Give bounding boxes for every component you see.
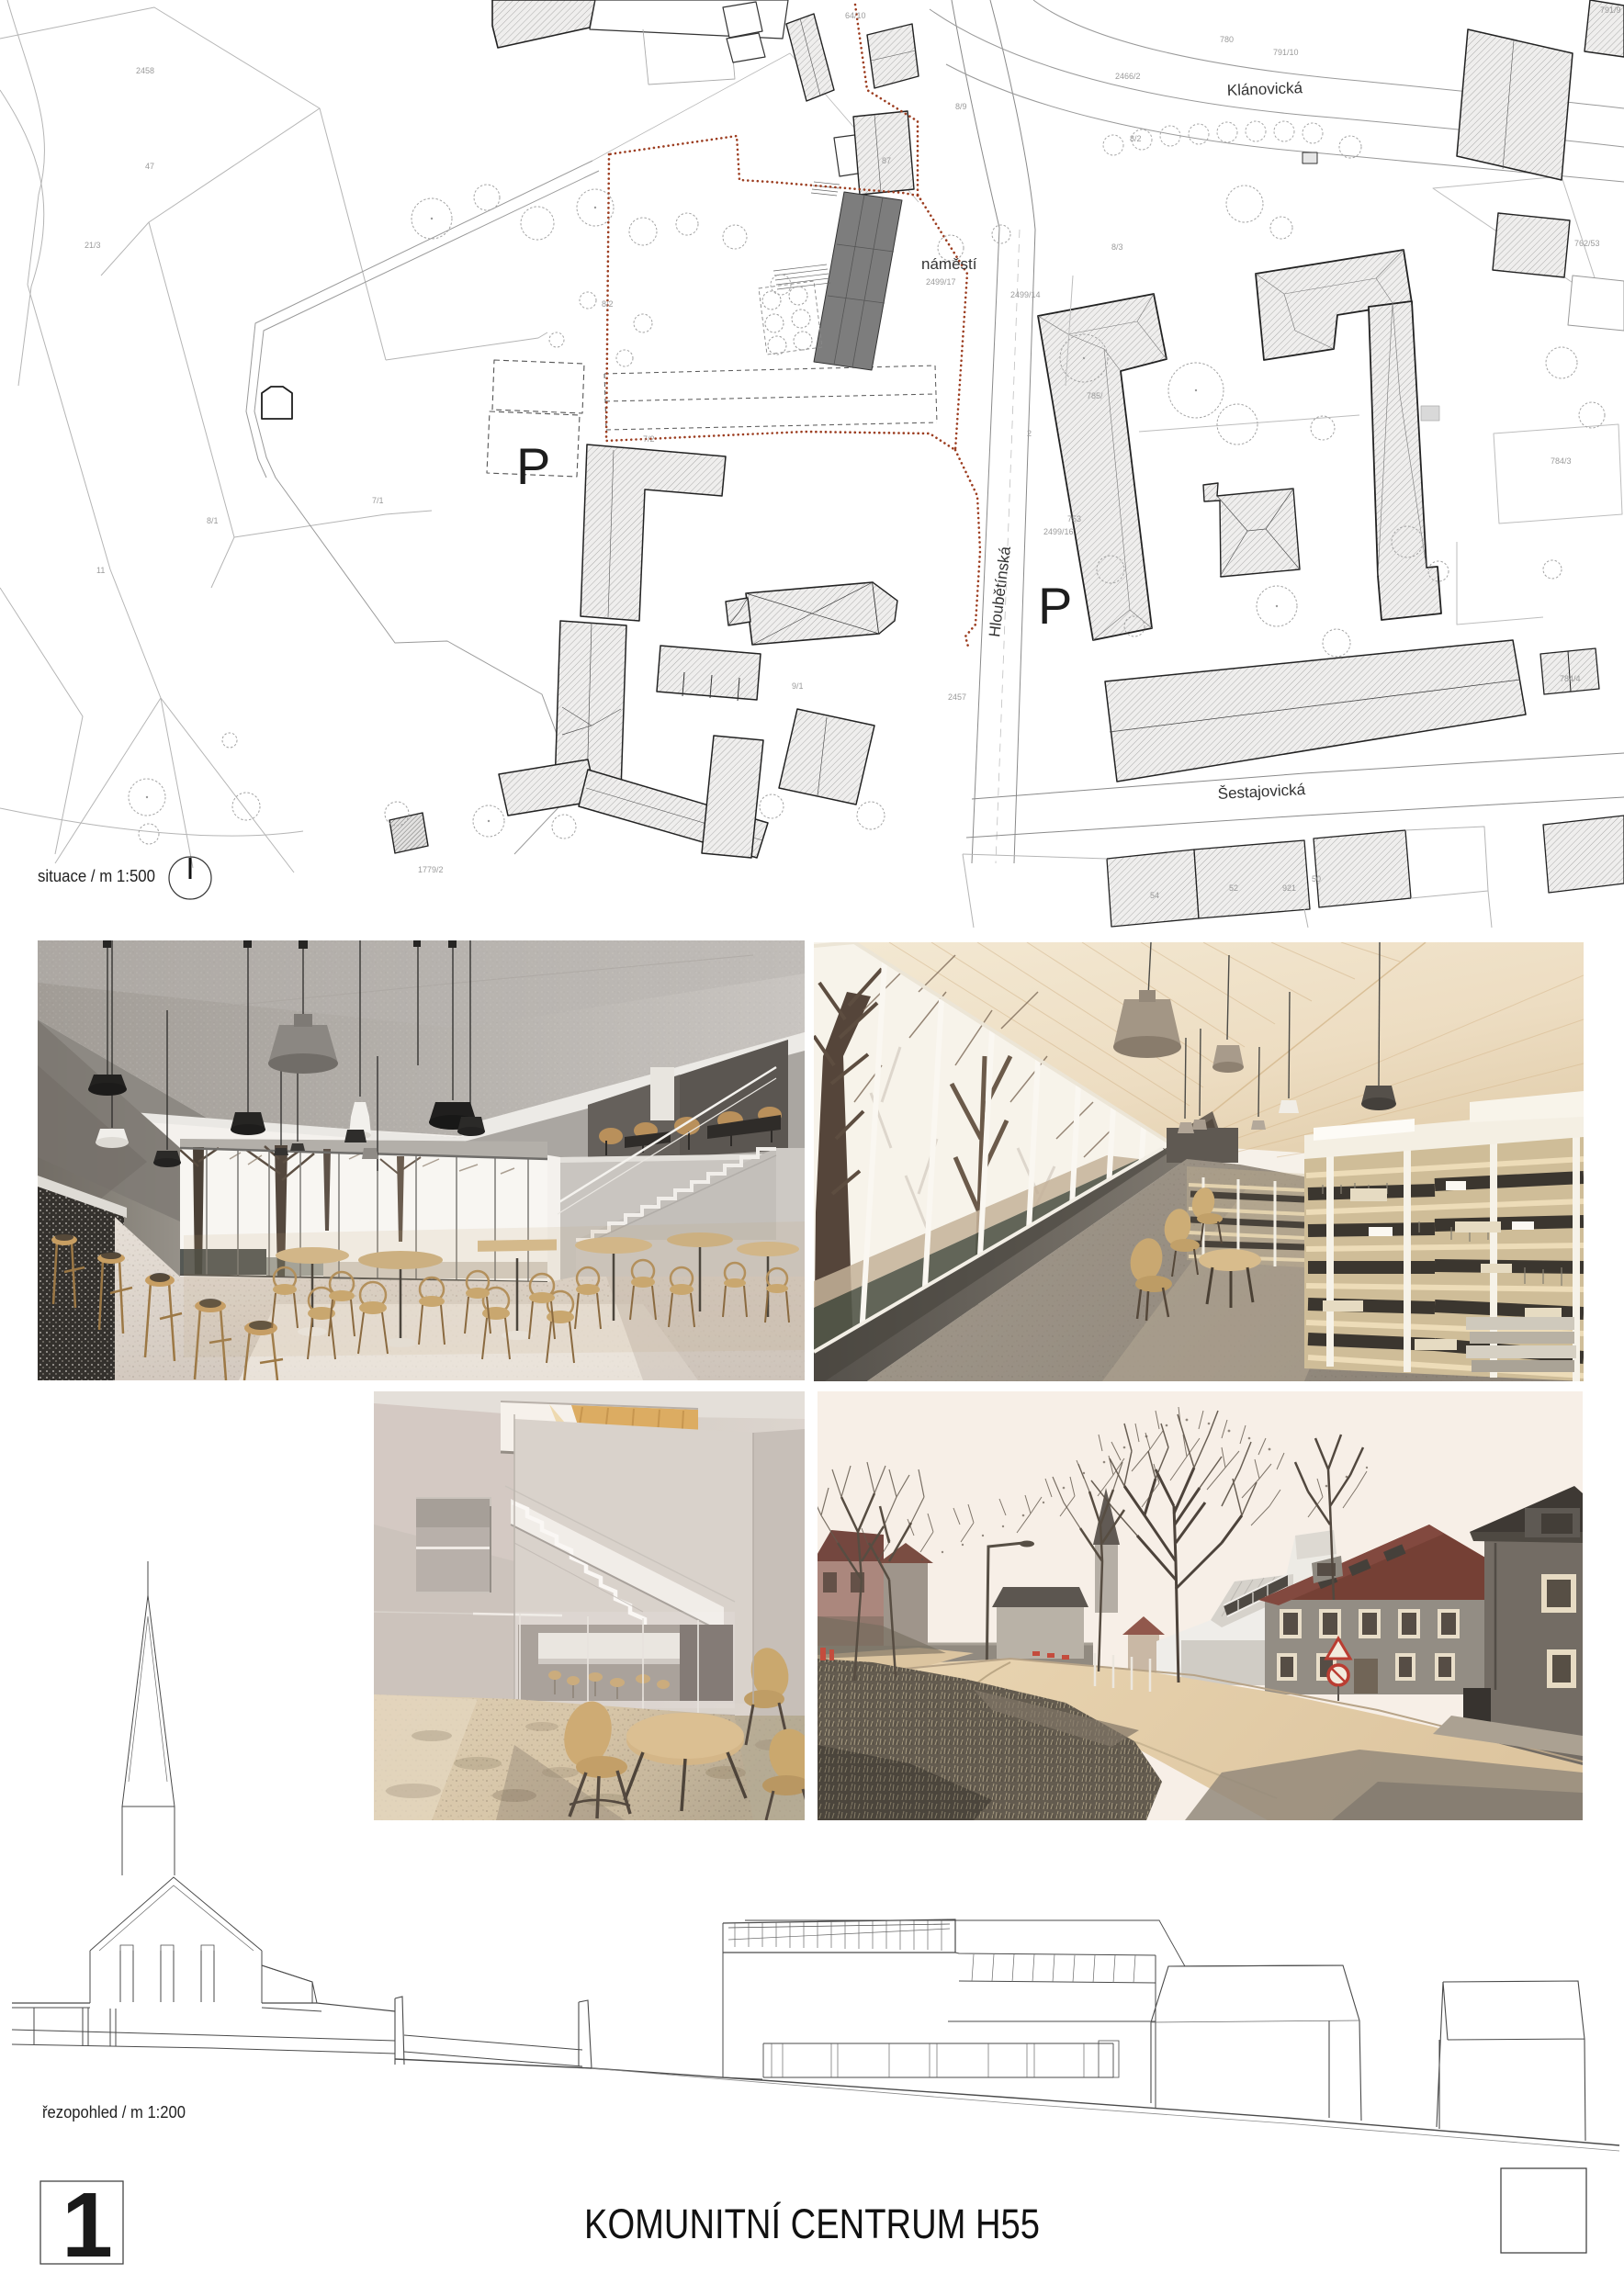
svg-text:9/1: 9/1 [792, 681, 804, 691]
svg-text:8/2: 8/2 [602, 299, 614, 309]
svg-text:Hloubětínská: Hloubětínská [986, 545, 1014, 637]
svg-text:791/10: 791/10 [1273, 48, 1299, 57]
svg-text:8/3: 8/3 [1111, 242, 1123, 252]
svg-text:11: 11 [96, 566, 105, 575]
svg-text:řezopohled / m 1:200: řezopohled / m 1:200 [42, 2103, 186, 2122]
svg-text:87: 87 [882, 156, 891, 165]
svg-text:8/2: 8/2 [1130, 134, 1142, 143]
svg-text:2499/16: 2499/16 [1043, 527, 1074, 536]
svg-text:2457: 2457 [948, 692, 966, 702]
svg-text:P: P [516, 437, 550, 495]
svg-text:1: 1 [62, 2174, 113, 2277]
svg-text:situace / m 1:500: situace / m 1:500 [38, 867, 155, 885]
svg-text:784/3: 784/3 [1551, 456, 1572, 466]
svg-text:8/1: 8/1 [207, 516, 219, 525]
svg-text:7/1: 7/1 [372, 496, 384, 505]
svg-text:P: P [1038, 577, 1072, 635]
svg-text:47: 47 [145, 162, 154, 171]
svg-text:2: 2 [1027, 429, 1032, 438]
svg-text:KOMUNITNÍ CENTRUM H55: KOMUNITNÍ CENTRUM H55 [584, 2200, 1040, 2247]
svg-text:784/4: 784/4 [1560, 674, 1581, 683]
svg-text:50: 50 [1312, 874, 1321, 884]
svg-text:8/9: 8/9 [955, 102, 967, 111]
svg-text:52: 52 [1229, 884, 1238, 893]
svg-text:2499/17: 2499/17 [926, 277, 956, 287]
svg-text:791/9: 791/9 [1600, 6, 1621, 15]
svg-text:64/10: 64/10 [845, 11, 866, 20]
svg-text:náměstí: náměstí [921, 255, 977, 273]
svg-text:2466/2: 2466/2 [1115, 72, 1141, 81]
svg-text:2499/14: 2499/14 [1010, 290, 1041, 299]
svg-text:Šestajovická: Šestajovická [1217, 781, 1306, 803]
svg-text:7/2: 7/2 [643, 434, 655, 444]
svg-text:1779/2: 1779/2 [418, 865, 444, 874]
svg-text:753: 753 [1067, 514, 1081, 523]
svg-text:780: 780 [1220, 35, 1234, 44]
svg-text:921: 921 [1282, 884, 1296, 893]
svg-text:762/53: 762/53 [1574, 239, 1600, 248]
svg-text:21/3: 21/3 [85, 241, 101, 250]
svg-text:2458: 2458 [136, 66, 154, 75]
svg-text:785/: 785/ [1087, 391, 1103, 400]
svg-text:Klánovická: Klánovická [1226, 79, 1303, 99]
svg-text:54: 54 [1150, 891, 1159, 900]
